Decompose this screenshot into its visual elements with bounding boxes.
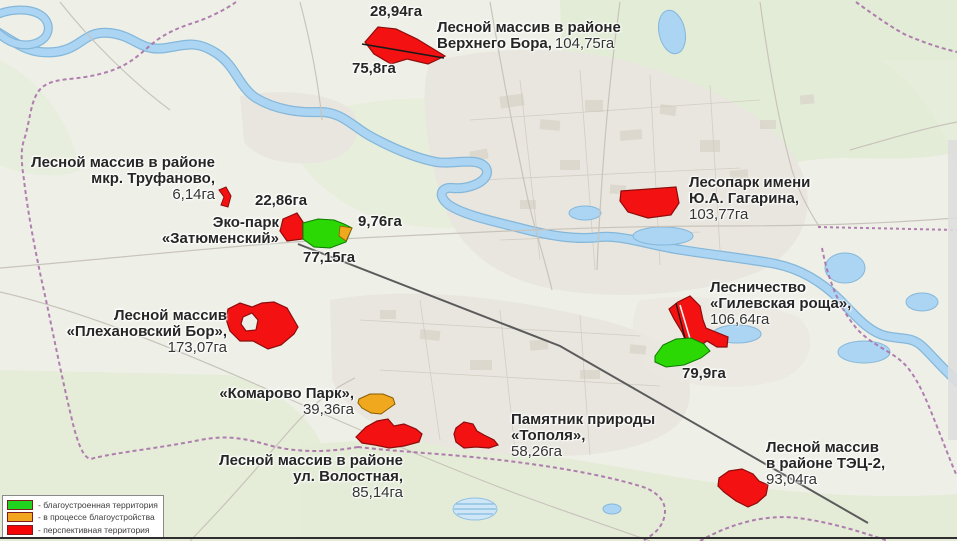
area-name-line: Лесной массив в районе	[219, 453, 403, 469]
marsh-lake	[453, 498, 497, 520]
label-plekhanovsky: Лесной массив «Плехановский Бор», 173,07…	[67, 308, 227, 356]
area-name-text: Верхнего Бора,	[437, 35, 552, 52]
legend-row-in-progress: - в процессе благоустройства	[7, 512, 159, 523]
city-map: 28,94га Лесной массив в районе Верхнего …	[0, 0, 957, 541]
area-name-line: Лесной массив в районе	[31, 155, 215, 171]
area-value-text: 9,76га	[358, 213, 402, 230]
label-verkhny-bor-value-bottom: 75,8га	[352, 61, 396, 77]
label-topolya: Памятник природы «Тополя», 58,26га	[511, 412, 655, 460]
area-value-text: 93,04га	[766, 472, 885, 488]
area-name-line: Лесопарк имени	[689, 175, 810, 191]
area-value-text: 106,64га	[710, 312, 851, 328]
legend-swatch-green	[7, 500, 33, 510]
area-name-line: ул. Волостная,	[219, 469, 403, 485]
label-zatyumensky: Эко-парк «Затюменский»	[162, 215, 279, 247]
legend-label: - перспективная территория	[38, 525, 150, 535]
area-value-text: 104,75га	[555, 35, 614, 52]
label-gilevskaya: Лесничество «Гилевская роща», 106,64га	[710, 280, 851, 328]
legend-label: - в процессе благоустройства	[38, 512, 155, 522]
label-trufanovo: Лесной массив в районе мкр. Труфаново, 6…	[31, 155, 215, 203]
area-name-line: «Гилевская роща»,	[710, 296, 851, 312]
area-name-line: Верхнего Бора,104,75га	[437, 36, 621, 52]
legend-row-improved: - благоустроенная территория	[7, 499, 159, 510]
area-name-line: «Комарово Парк»,	[219, 386, 354, 402]
area-value-text: 85,14га	[219, 485, 403, 501]
area-value-text: 6,14га	[31, 187, 215, 203]
area-name-line: «Тополя»,	[511, 428, 655, 444]
area-name-line: Лесной массив	[766, 440, 885, 456]
area-value-text: 77,15га	[303, 249, 355, 266]
legend-label: - благоустроенная территория	[38, 500, 158, 510]
area-name-line: Памятник природы	[511, 412, 655, 428]
area-value-text: 103,77га	[689, 207, 810, 223]
area-name-line: Лесной массив в районе	[437, 20, 621, 36]
legend-swatch-orange	[7, 512, 33, 522]
label-gagarin: Лесопарк имени Ю.А. Гагарина, 103,77га	[689, 175, 810, 223]
area-name-line: «Плехановский Бор»,	[67, 324, 227, 340]
area-name-line: в районе ТЭЦ-2,	[766, 456, 885, 472]
label-zatyumensky-value-green: 77,15га	[303, 250, 355, 266]
bottom-border	[0, 537, 957, 539]
label-gilevskaya-value-green: 79,9га	[682, 366, 726, 382]
map-edge-strip	[948, 140, 957, 440]
area-value-text: 28,94га	[370, 3, 422, 20]
label-volostnaya: Лесной массив в районе ул. Волостная, 85…	[219, 453, 403, 501]
label-verkhny-bor-value-top: 28,94га	[370, 4, 422, 20]
area-value-text: 173,07га	[67, 340, 227, 356]
label-zatyumensky-value-red: 22,86га	[255, 193, 307, 209]
label-komarovo: «Комарово Парк», 39,36га	[219, 386, 354, 418]
area-name-line: Лесничество	[710, 280, 851, 296]
legend: - благоустроенная территория - в процесс…	[2, 495, 164, 539]
label-tec2: Лесной массив в районе ТЭЦ-2, 93,04га	[766, 440, 885, 488]
legend-swatch-red	[7, 525, 33, 535]
area-value-text: 58,26га	[511, 444, 655, 460]
area-value-text: 75,8га	[352, 60, 396, 77]
area-name-line: Ю.А. Гагарина,	[689, 191, 810, 207]
area-value-text: 39,36га	[219, 402, 354, 418]
area-value-text: 22,86га	[255, 192, 307, 209]
legend-row-prospective: - перспективная территория	[7, 524, 159, 535]
label-verkhny-bor: Лесной массив в районе Верхнего Бора,104…	[437, 20, 621, 52]
area-name-line: Эко-парк	[162, 215, 279, 231]
area-value-text: 79,9га	[682, 365, 726, 382]
area-name-line: «Затюменский»	[162, 231, 279, 247]
label-zatyumensky-value-orange: 9,76га	[358, 214, 402, 230]
area-name-line: Лесной массив	[67, 308, 227, 324]
area-name-line: мкр. Труфаново,	[31, 171, 215, 187]
